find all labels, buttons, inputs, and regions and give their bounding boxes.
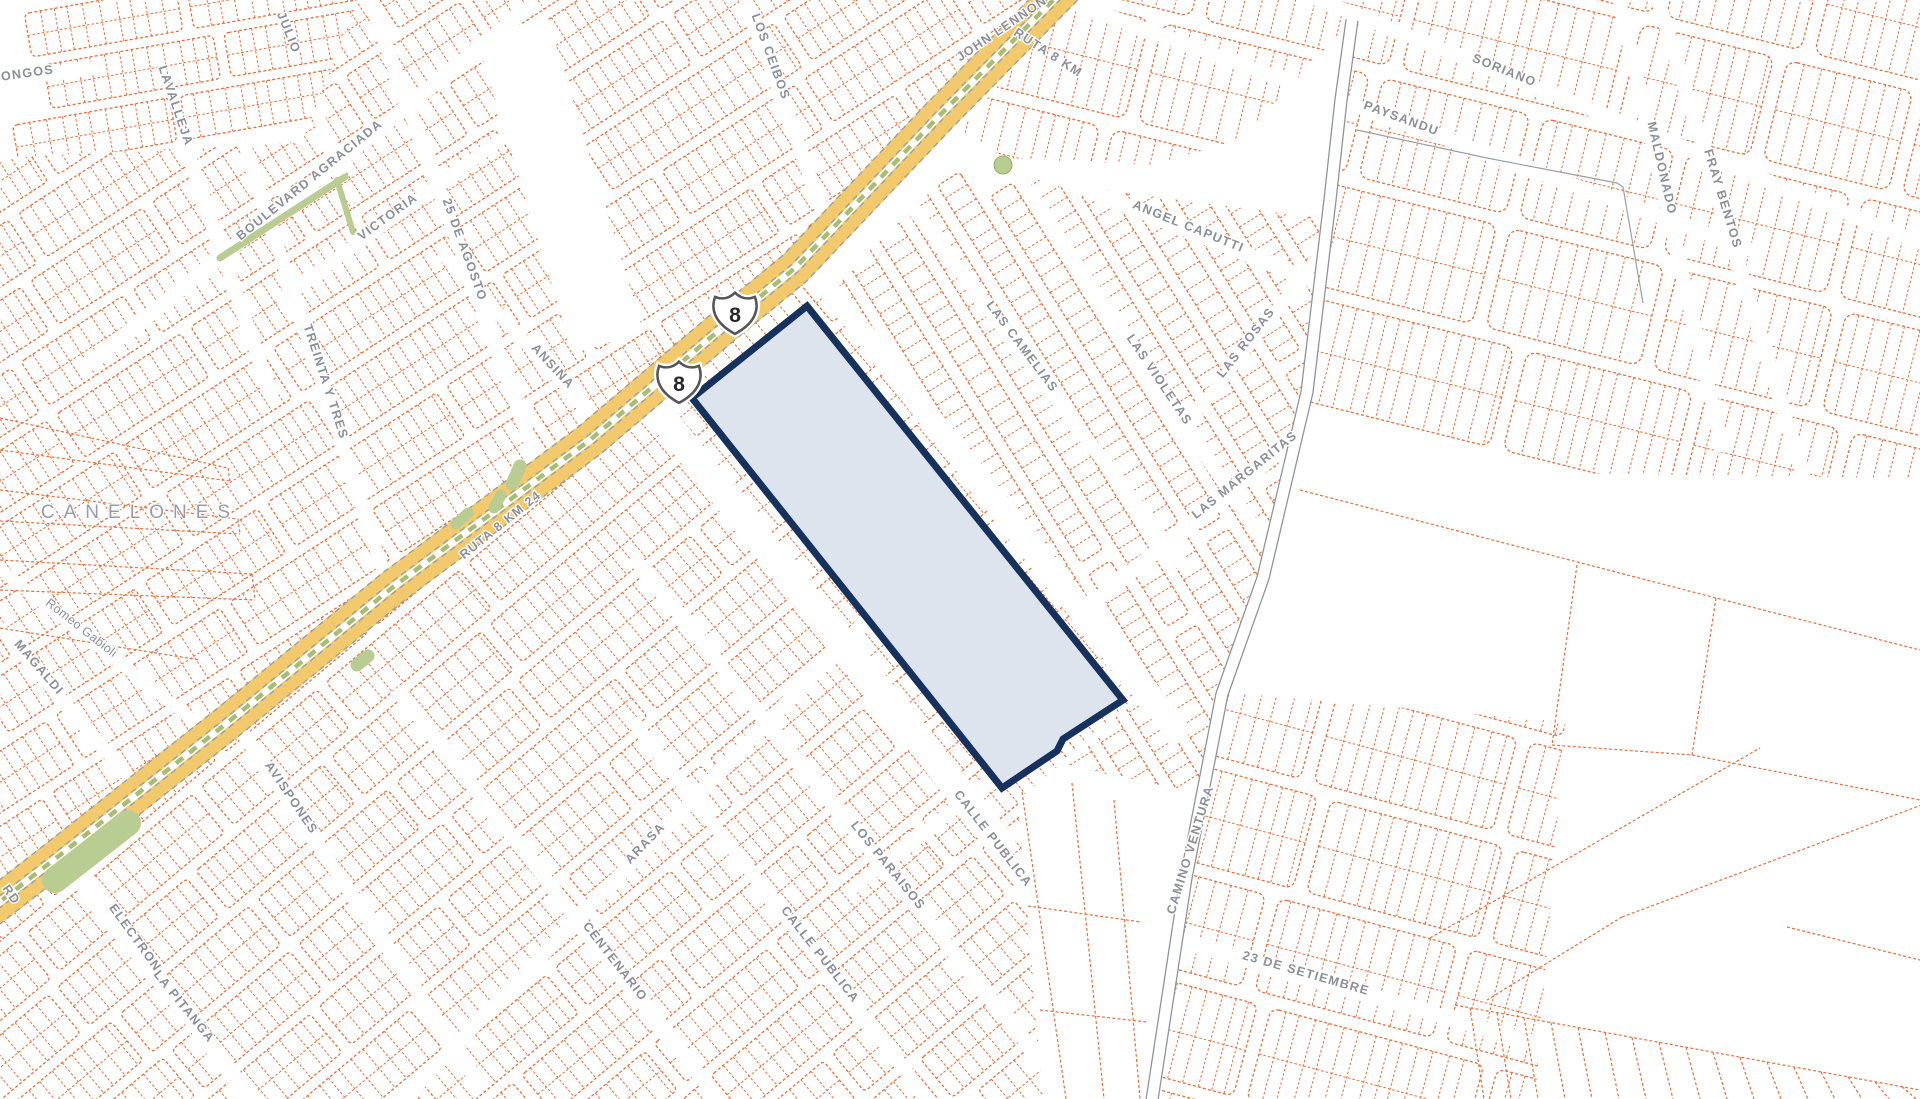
route-number: 8 <box>673 372 685 396</box>
region-label: CANELONES <box>41 502 239 523</box>
green-roundabout <box>994 156 1012 174</box>
map-viewport[interactable]: 88ONGOSLAVALLEJAJULIOBOULEVARD AGRACIADA… <box>0 0 1920 1099</box>
route-number: 8 <box>729 303 741 327</box>
cadastral-map: 88ONGOSLAVALLEJAJULIOBOULEVARD AGRACIADA… <box>0 0 1920 1099</box>
